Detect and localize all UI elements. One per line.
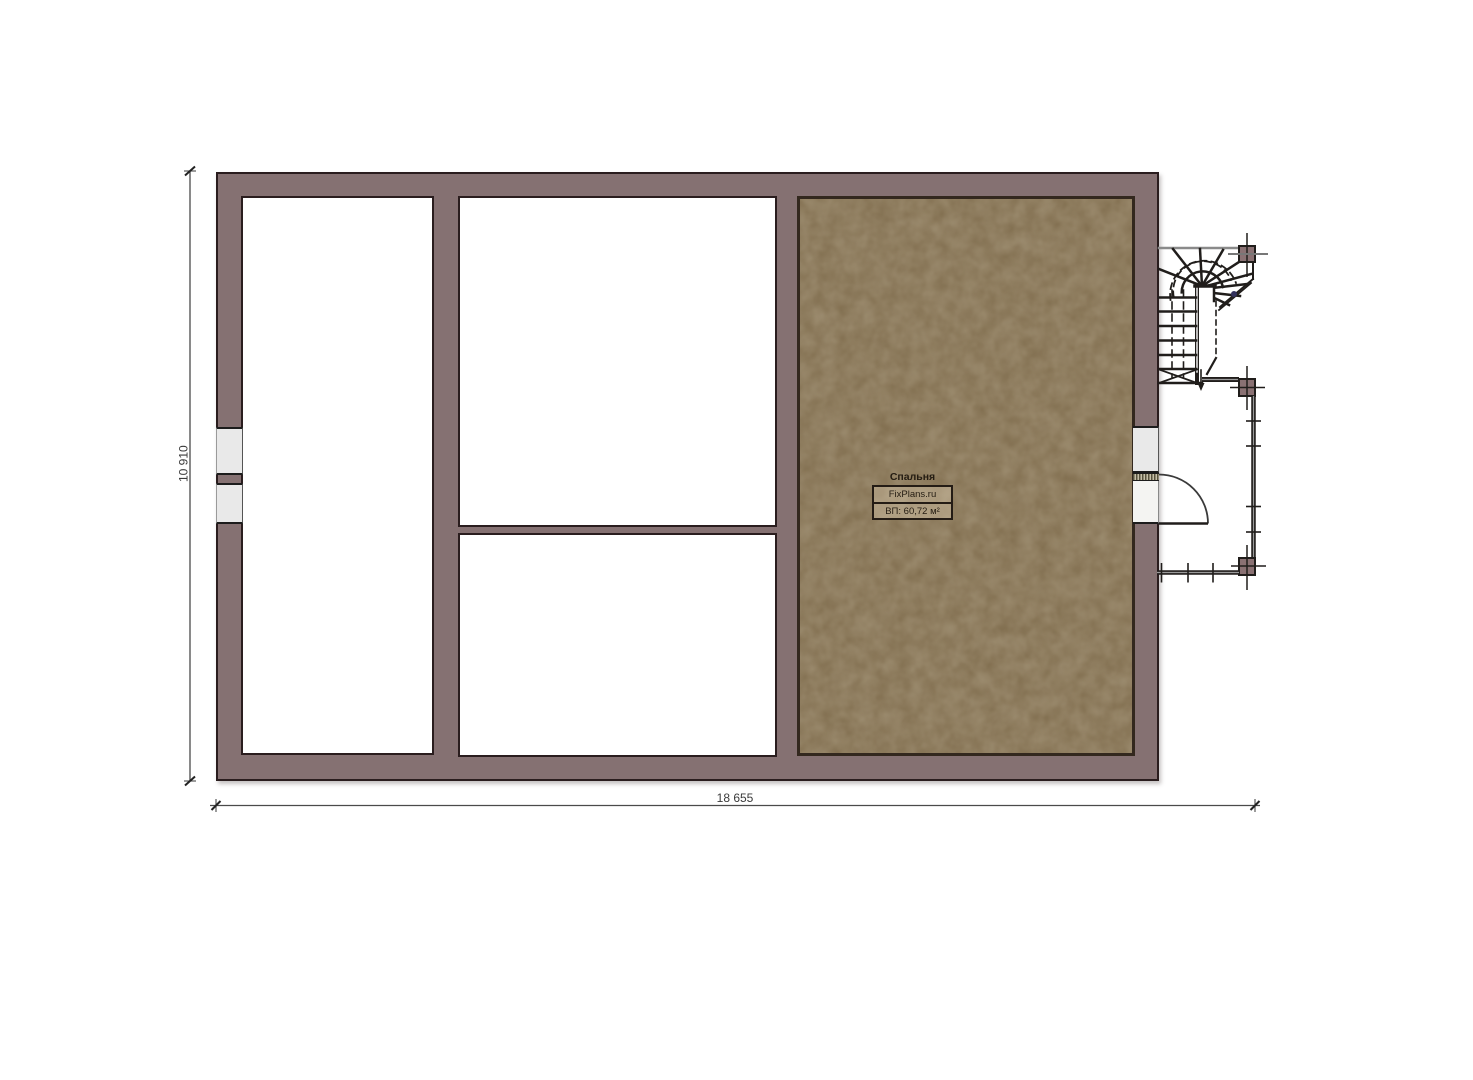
svg-text:10 910: 10 910 xyxy=(177,445,191,482)
svg-text:18 655: 18 655 xyxy=(717,791,754,805)
